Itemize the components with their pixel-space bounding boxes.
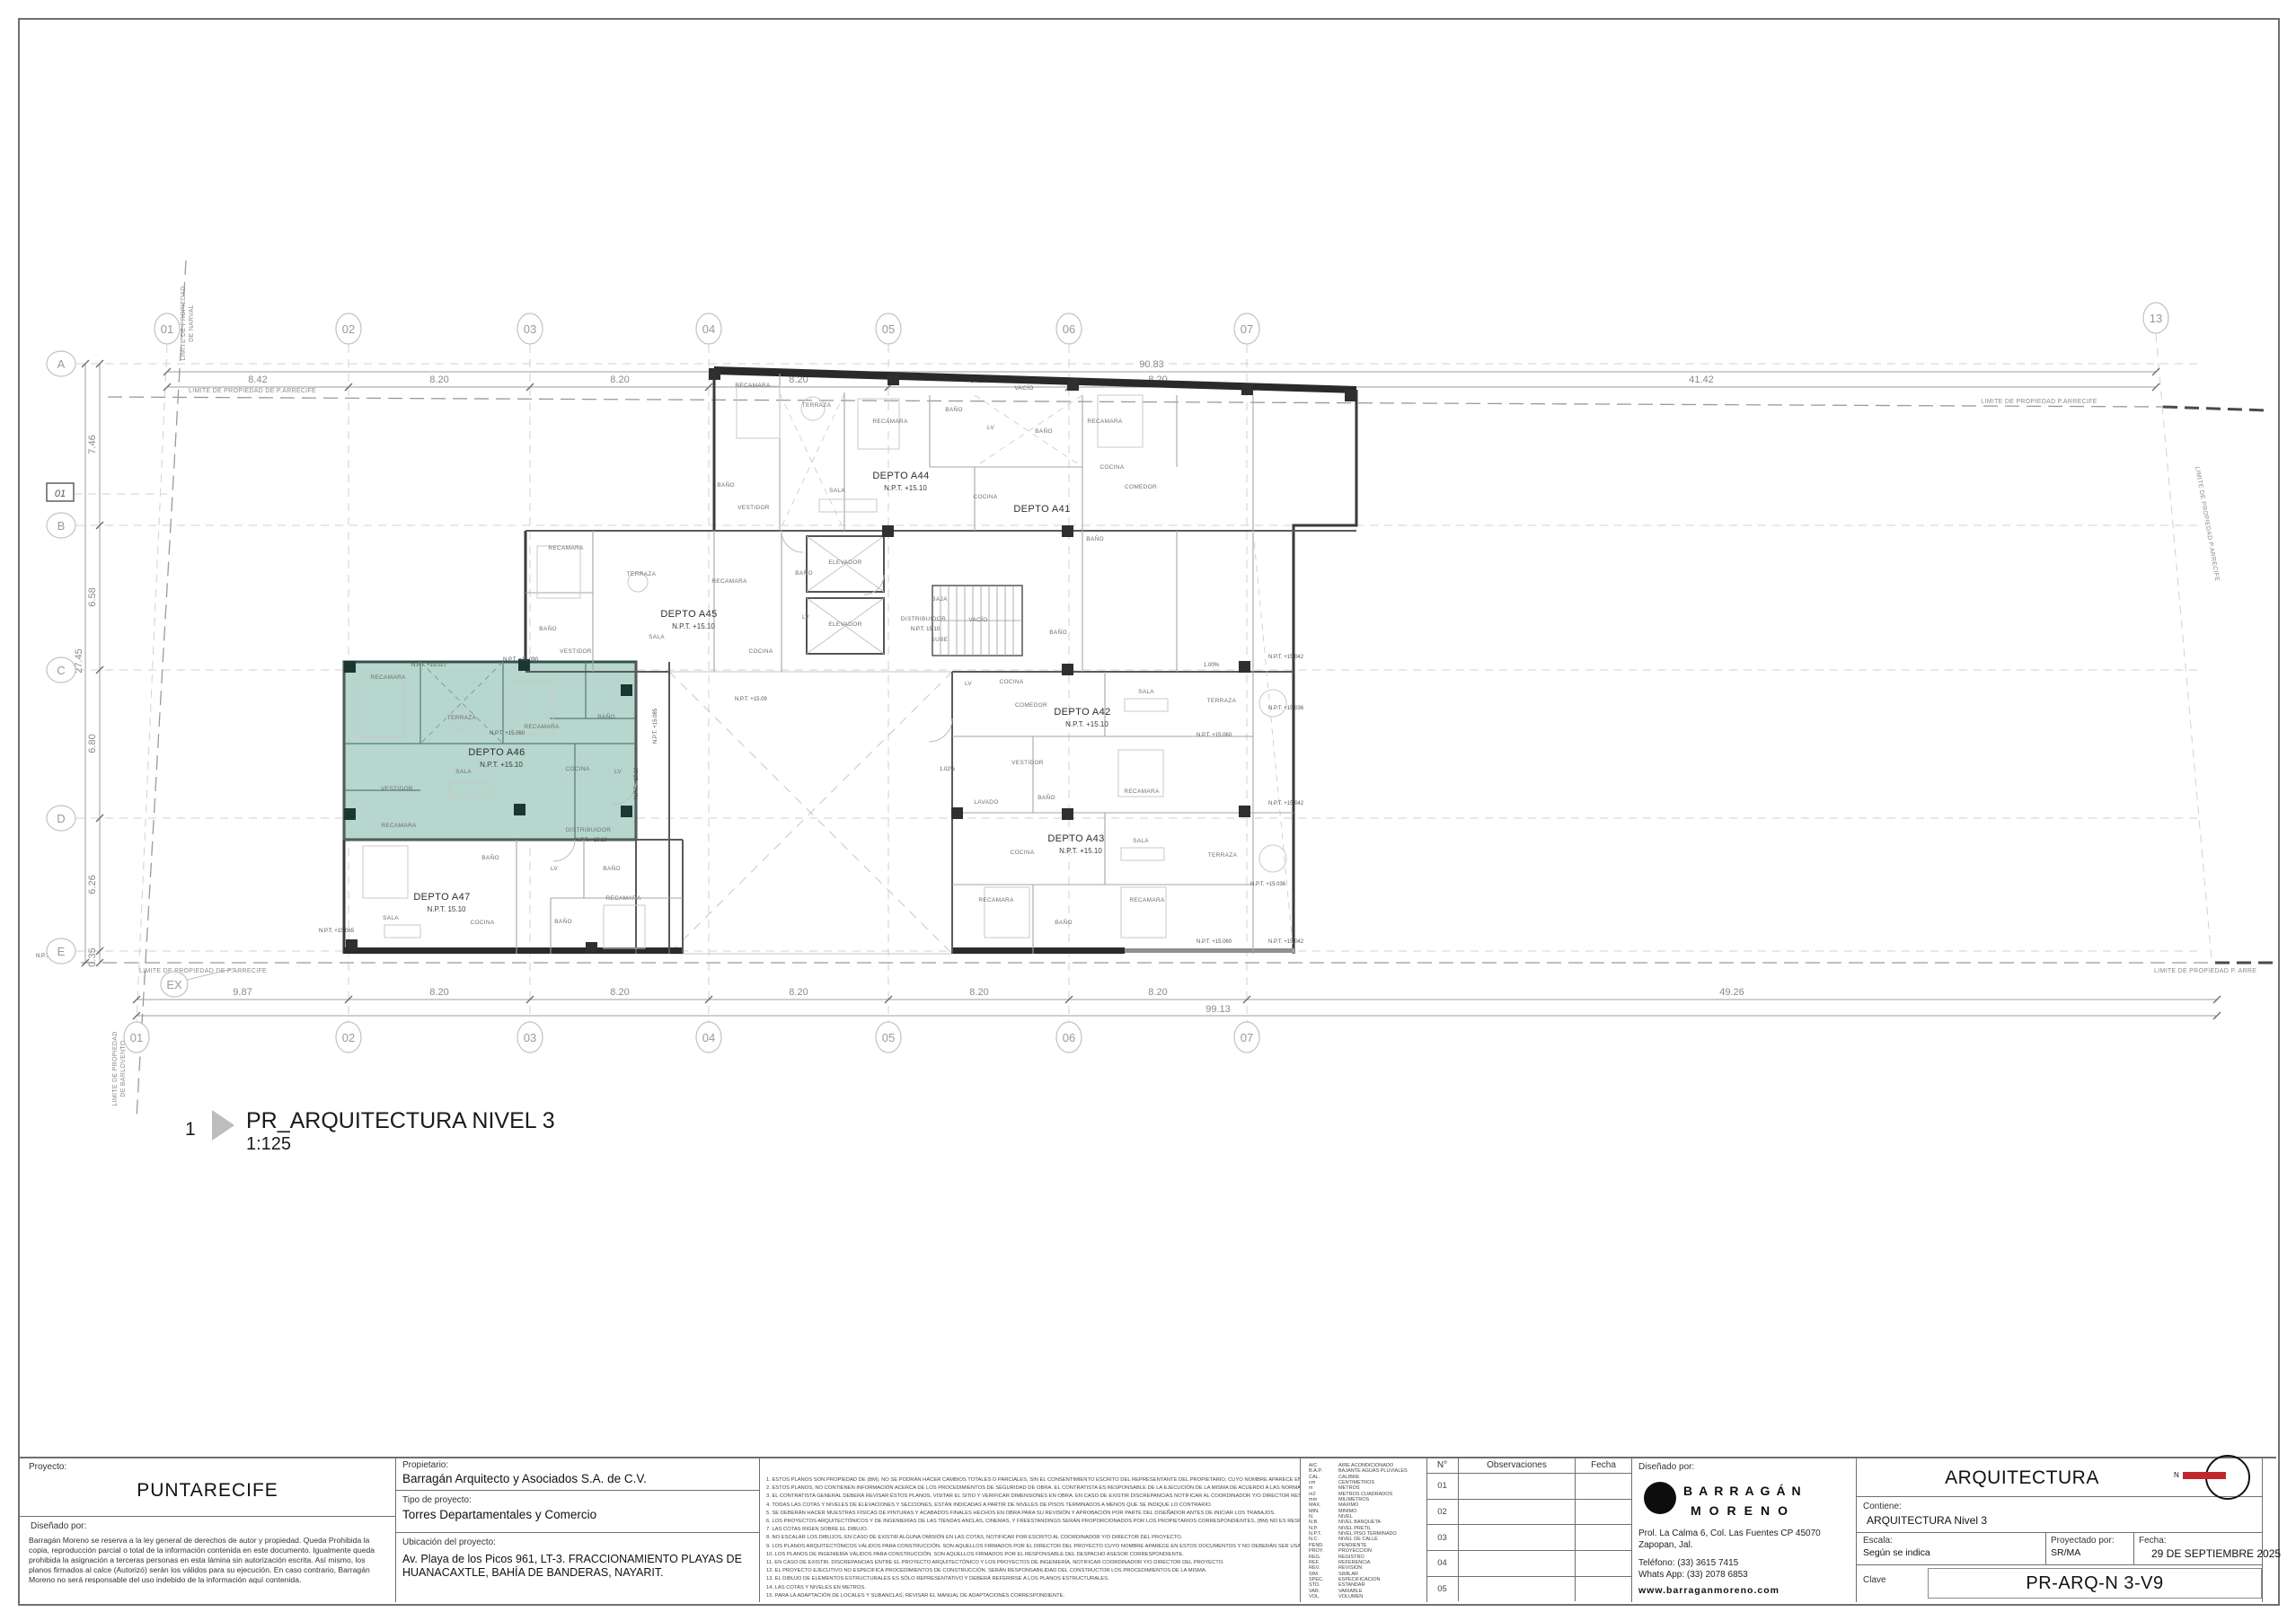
grid-bubble-top: 03 [524,322,536,336]
abbr-row: VOL.VOLUMEN [1309,1594,1408,1599]
room-label: RECAMARA [605,895,641,902]
logo-text-line2: MORENO [1691,1503,1796,1518]
room-label: BAJA [932,596,948,603]
fecha-value: 29 DE SEPTIEMBRE 2025 [2151,1547,2281,1560]
note-line: 11. EN CASO DE EXISTIR, DISCREPANCIAS EN… [766,1559,1300,1567]
dim-bottom-4: 8.20 [789,987,808,998]
room-label: BAÑO [1035,427,1053,435]
room-label: SALA [649,634,665,640]
unit-label-a47: DEPTO A47 [413,892,470,903]
room-label: BAÑO [539,624,557,632]
room-label: RECAMARA [1087,418,1123,425]
note-line: 10. LOS PLANOS DE INGENIERÍA VÁLIDOS PAR… [766,1551,1300,1559]
core [807,536,1022,656]
titleblock-owner-cell: Propietario: Barragán Arquitecto y Asoci… [395,1457,759,1602]
limit-label-left-bottom-2: DE BARLOVENTO [120,1040,127,1097]
room-label: VESTIDOR [1011,760,1044,766]
location-label: Ubicación del proyecto: [402,1537,496,1547]
grid-bubble-row: C [57,664,65,677]
owner-name: Barragán Arquitecto y Asociados S.A. de … [402,1472,753,1485]
room-label: TERRAZA [1208,852,1238,859]
obs-row-number: 02 [1426,1500,1459,1525]
obs-row-date [1576,1577,1631,1602]
dim-bottom-3: 8.20 [610,987,629,998]
room-label: BAÑO [945,405,963,413]
room-label: RECAMARA [548,545,584,551]
room-label: LV [551,866,558,872]
titleblock-designer-cell: Diseñado por: BARRAGÁN MORENO Prol. La C… [1631,1457,1856,1602]
view-number: 1 [185,1119,196,1141]
room-label: RECAMARA [381,823,417,829]
designer-phone: Teléfono: (33) 3615 7415 [1638,1558,1738,1568]
npt-marker: N.P.T. +15.036 [1268,706,1304,711]
room-label: BAÑO [1038,793,1055,801]
designer-label: Diseñado por: [1638,1462,1694,1472]
distribuidor-npt-left: N.P.T. +15.10 [575,838,607,843]
room-label: LV [802,614,809,621]
obs-row-date [1576,1474,1631,1499]
contiene-label: Contiene: [1863,1502,1902,1511]
observations-row: 04 [1426,1551,1631,1577]
dimension-texts: 8.42 8.20 8.20 8.20 8.20 8.20 41.42 90.8… [74,359,1744,1015]
unit-npt-a43: N.P.T. +15.10 [1059,847,1102,855]
room-label: RECAMARA [978,897,1014,903]
room-label: BAÑO [603,864,621,872]
room-label: SALA [383,915,399,921]
logo-text-line1: BARRAGÁN [1683,1484,1807,1498]
npt-marker: N.P.T. +15.085 [653,708,658,744]
room-label: BAÑO [597,712,615,720]
fecha-label: Fecha: [2139,1536,2167,1546]
designer-website: www.barraganmoreno.com [1638,1585,1779,1596]
dim-top-3: 8.20 [610,374,629,385]
limit-label-top: LIMITE DE PROPIEDAD DE P.ARRECIFE [189,388,316,394]
barragan-moreno-logo-icon [1644,1482,1676,1514]
project-type-label: Tipo de proyecto: [402,1495,472,1505]
obs-col-observaciones: Observaciones [1459,1457,1576,1473]
room-label: TERRAZA [1207,698,1237,704]
room-label: ELEVADOR [828,559,861,566]
note-line: 12. EL PROYECTO EJECUTIVO NO ESPECIFICA … [766,1567,1300,1575]
unit-npt-a44: N.P.T. +15.10 [884,484,927,492]
north-letter: N [2174,1471,2179,1479]
proyectado-value: SR/MA [2051,1547,2080,1558]
escala-value: Según se indica [1863,1547,1930,1558]
limit-label-left-top-2: DE NARVAL [189,304,195,342]
room-label: VACÍO [1014,383,1033,392]
titleblock-divider [2262,1457,2263,1602]
room-label: COCINA [1099,464,1124,471]
room-label: RECAMARA [735,383,771,389]
observations-row: 01 [1426,1474,1631,1500]
obs-row-text [1459,1500,1576,1525]
room-label: BAÑO [554,917,572,925]
room-label: SALA [829,488,845,494]
npt-marker: N.P.T. +15.060 [1197,733,1232,738]
unit-label-a41: DEPTO A41 [1013,504,1070,515]
npt-marker: N.P.T. +15.042 [1268,939,1304,945]
note-line: 4. TODAS LAS COTAS Y NIVELES DE ELEVACIO… [766,1502,1300,1510]
abbr-meaning: VOLUMEN [1338,1594,1363,1599]
room-label: TERRAZA [627,571,657,577]
location-text: Av. Playa de los Picos 961, LT-3. FRACCI… [402,1553,753,1580]
room-label: TERRAZA [802,402,832,409]
titleblock-right-cell: ARQUITECTURA N Contiene: ARQUITECTURA Ni… [1856,1457,2262,1602]
dim-top-7: 41.42 [1689,374,1714,385]
note-line: 7. LAS COTAS RIGEN SOBRE EL DIBUJO. [766,1526,1300,1534]
unit-label-a46: DEPTO A46 [468,747,525,758]
dim-bottom-1: 9.87 [233,987,252,998]
room-label: VESTIDOR [560,648,592,655]
obs-row-text [1459,1577,1576,1602]
dim-left-5: 0.35 [87,947,98,966]
obs-col-no: N° [1426,1457,1459,1473]
room-label: COCINA [565,766,589,772]
dim-left-2: 6.58 [87,587,98,606]
grid-bubble-top: 01 [161,322,173,336]
note-line: 9. LOS PLANOS ARQUITECTÓNICOS VÁLIDOS PA… [766,1543,1300,1551]
dim-left-4: 6.26 [87,875,98,894]
npt-marker: N.P.T. +15.027 [411,663,447,668]
room-label: COMEDOR [1125,484,1157,490]
limit-label-top-right: LIMITE DE PROPIEDAD P.ARRECIFE [1981,399,2097,405]
room-label: LAVADO [974,799,998,806]
room-label: BAÑO [481,853,499,861]
grid-bubble-top: 07 [1241,322,1253,336]
abbr: VOL. [1309,1594,1338,1599]
limit-label-bottom: LIMITE DE PROPIEDAD DE P.ARRECIFE [139,968,267,974]
npt-marker: N.P.T. +15.042 [1268,655,1304,660]
grid-bubble-row: D [57,812,65,825]
obs-row-number: 01 [1426,1474,1459,1499]
distribuidor-label-core: DISTRIBUIDOR [901,616,946,622]
building-walls [344,366,1356,954]
obs-row-number: 04 [1426,1551,1459,1576]
obs-row-date [1576,1500,1631,1525]
distribuidor-label-left: DISTRIBUIDOR [566,827,611,833]
grid-bubble-top: 02 [342,322,355,336]
grid-bubble-top: 13 [2150,312,2162,325]
courtyard [669,672,952,954]
note-line: 14. LAS COTAS Y NIVELES EN METROS. [766,1584,1300,1592]
observations-header: N° Observaciones Fecha [1426,1457,1631,1474]
observations-row: 02 [1426,1500,1631,1526]
grid-bubble-ex: EX [166,978,182,991]
room-label: SALA [1133,838,1149,844]
legal-text: Barragán Moreno se reserva a la ley gene… [29,1536,386,1585]
note-line: 8. NO ESCALAR LOS DIBUJOS, EN CASO DE EX… [766,1534,1300,1542]
observations-row: 03 [1426,1525,1631,1551]
grid-bubble-row: B [57,519,66,533]
obs-row-text [1459,1525,1576,1550]
room-label: VESTIDOR [737,505,770,511]
room-label: VESTIDOR [381,786,413,792]
room-label: COMEDOR [1015,702,1047,709]
limit-label-left-top: LIMITE DE PROPIEDAD [181,286,187,360]
observations-row: 05 [1426,1577,1631,1602]
dim-left-3: 6.80 [87,734,98,753]
observations-table: N° Observaciones Fecha 01 02 03 04 05 [1426,1457,1631,1602]
unit-label-a44: DEPTO A44 [872,471,929,481]
unit-npt-a42: N.P.T. +15.10 [1065,720,1108,728]
room-label: BAÑO [1086,534,1104,542]
escala-label: Escala: [1863,1536,1893,1546]
project-name: PUNTARECIFE [20,1480,395,1502]
unit-npt-a45: N.P.T. +15.10 [672,622,715,630]
distribuidor-npt-core: N.P.T. 15.10 [911,627,940,632]
npt-marker: N.P.T. +15.036 [1250,882,1286,887]
grid-bubble-bottom: 01 [130,1031,143,1044]
note-line: 1. ESTOS PLANOS SON PROPIEDAD DE (BM). N… [766,1476,1300,1484]
room-label: VACÍO [968,615,987,623]
dim-bottom-2: 8.20 [429,987,448,998]
room-label: COCINA [748,648,773,655]
room-label: SALA [1138,689,1154,695]
room-label: LV [987,425,994,431]
room-label: SALA [455,769,472,775]
clave-label: Clave [1863,1575,1886,1585]
obs-row-number: 05 [1426,1577,1459,1602]
level-tag: 01 [55,489,66,499]
grid-bubble-bottom: 06 [1063,1031,1075,1044]
designer-address-1: Prol. La Calma 6, Col. Las Fuentes CP 45… [1638,1528,1821,1538]
npt-marker: N.P.T. +15.060 [490,731,525,736]
dim-bottom-overall: 99.13 [1205,1004,1231,1015]
dim-top-overall: 90.83 [1139,359,1164,370]
grid-bubble-top: 04 [702,322,715,336]
grid-bubble-bottom: 02 [342,1031,355,1044]
room-label: RECAMARA [524,724,560,730]
room-label: TERRAZA [447,715,477,721]
npt-marker: N.P.T. +15.09 [735,697,767,702]
limit-label-left-bottom: LIMITE DE PROPIEDAD [112,1031,119,1106]
titleblock-abbreviations-cell: A/CAIRE ACONDICIONADO B.A.P.BAJANTE AGUA… [1300,1457,1426,1602]
obs-row-date [1576,1551,1631,1576]
dim-top-2: 8.20 [429,374,448,385]
room-label: BAÑO [795,568,813,577]
npt-marker: N.P.T. +15.065 [319,929,355,934]
designer-whatsapp: Whats App: (33) 2078 6853 [1638,1570,1748,1580]
room-label: BAÑO [1049,628,1067,636]
north-arrow-bar [2183,1472,2226,1479]
note-line: 6. LOS PROYECTOS ARQUITECTÓNICOS Y DE IN… [766,1518,1300,1526]
limit-label-bottom-right: LIMITE DE PROPIEDAD P. ARRE [2154,968,2256,974]
grid-bubble-top: 05 [882,322,895,336]
npt-marker: N.P.T. +15.042 [1268,801,1304,806]
dim-left-1: 7.46 [87,435,98,454]
room-label: RECAMARA [370,674,406,681]
contiene-value: ARQUITECTURA Nivel 3 [1867,1514,1987,1527]
titleblock-project-cell: Proyecto: PUNTARECIFE Diseñado por: Barr… [20,1457,395,1602]
room-label: RECAMARA [711,578,747,585]
dim-top-1: 8.42 [248,374,267,385]
room-label: BAÑO [1055,918,1073,926]
designed-by-label: Diseñado por: [31,1521,86,1531]
floor-plan: LIMITE DE PROPIEDAD DE P.ARRECIFE LIMITE… [0,0,2296,1621]
obs-row-date [1576,1525,1631,1550]
designer-address-2: Zapopan, Jal. [1638,1540,1693,1550]
discipline-title: ARQUITECTURA [1856,1467,2188,1489]
dim-bottom-7: 49.26 [1719,987,1744,998]
grid-bubble-row: A [57,357,66,371]
room-label: LV [965,681,972,687]
room-label: RECAMARA [872,418,908,425]
note-line: 3. EL CONTRATISTA GENERAL DEBERÁ REVISAR… [766,1493,1300,1501]
npt-marker: N.P.T. +15.10 [634,767,640,799]
obs-row-number: 03 [1426,1525,1459,1550]
owner-label: Propietario: [402,1460,448,1470]
note-line: 13. EL DIBUJO DE ELEMENTOS ESTRUCTURALES… [766,1575,1300,1583]
grid-bubble-row: E [57,945,66,958]
room-label: COCINA [1010,850,1034,856]
room-label: LV [614,769,622,775]
clave-value: PR-ARQ-N 3-V9 [1928,1568,2262,1599]
note-line: 2. ESTOS PLANOS, NO CONTIENEN INFORMACIÓ… [766,1484,1300,1493]
room-label: RECAMARA [1124,788,1160,795]
room-label: SUBE [932,637,949,643]
unit-label-a43: DEPTO A43 [1047,833,1104,844]
npt-marker: N.P.T. +15.060 [1197,939,1232,945]
dim-bottom-6: 8.20 [1148,987,1167,998]
room-label: ELEVADOR [828,621,861,628]
room-label: COCINA [999,679,1023,685]
limit-label-right: LIMITE DE PROPIEDAD P.ARRECIFE [2194,466,2220,582]
room-label: RECAMARA [1129,897,1165,903]
obs-row-text [1459,1551,1576,1576]
grid-bubble-bottom: 03 [524,1031,536,1044]
room-labels: RECAMARA TERRAZA RECAMARA BAÑO VACÍO LV … [370,383,1237,926]
obs-col-fecha: Fecha [1576,1457,1631,1473]
unit-npt-a46: N.P.T. +15.10 [480,761,523,769]
room-label: COCINA [973,494,997,500]
view-scale: 1:125 [246,1134,291,1155]
view-title-text: PR_ARQUITECTURA NIVEL 3 [246,1108,555,1134]
view-marker-icon [212,1110,234,1141]
dim-bottom-5: 8.20 [969,987,988,998]
grid-bubble-bottom: 05 [882,1031,895,1044]
grid-bubble-top: 06 [1063,322,1075,336]
room-label: COCINA [470,920,494,926]
proyectado-label: Proyectado por: [2051,1536,2115,1546]
room-label: BAÑO [717,480,735,489]
obs-row-text [1459,1474,1576,1499]
project-type: Torres Departamentales y Comercio [402,1508,753,1521]
note-line: 15. PARA LA ADAPTACIÓN DE LOCALES Y SUBA… [766,1592,1300,1600]
unit-label-a45: DEPTO A45 [660,609,717,620]
grid-bubble-bottom: 07 [1241,1031,1253,1044]
unit-npt-a47: N.P.T. 15.10 [428,905,467,913]
npt-marker: N.P.T. +15.090 [503,657,539,663]
titleblock-notes-cell: 1. ESTOS PLANOS SON PROPIEDAD DE (BM). N… [759,1457,1300,1602]
slope-marker: 1.02% [940,767,956,772]
grid-bubble-bottom: 04 [702,1031,715,1044]
unit-label-a42: DEPTO A42 [1054,707,1110,718]
slope-marker: 1.00% [1204,663,1220,668]
drawing-sheet: LIMITE DE PROPIEDAD DE P.ARRECIFE LIMITE… [0,0,2296,1621]
note-line: 5. SE DEBERÁN HACER MUESTRAS FÍSICAS DE … [766,1510,1300,1518]
project-label: Proyecto: [29,1462,66,1472]
